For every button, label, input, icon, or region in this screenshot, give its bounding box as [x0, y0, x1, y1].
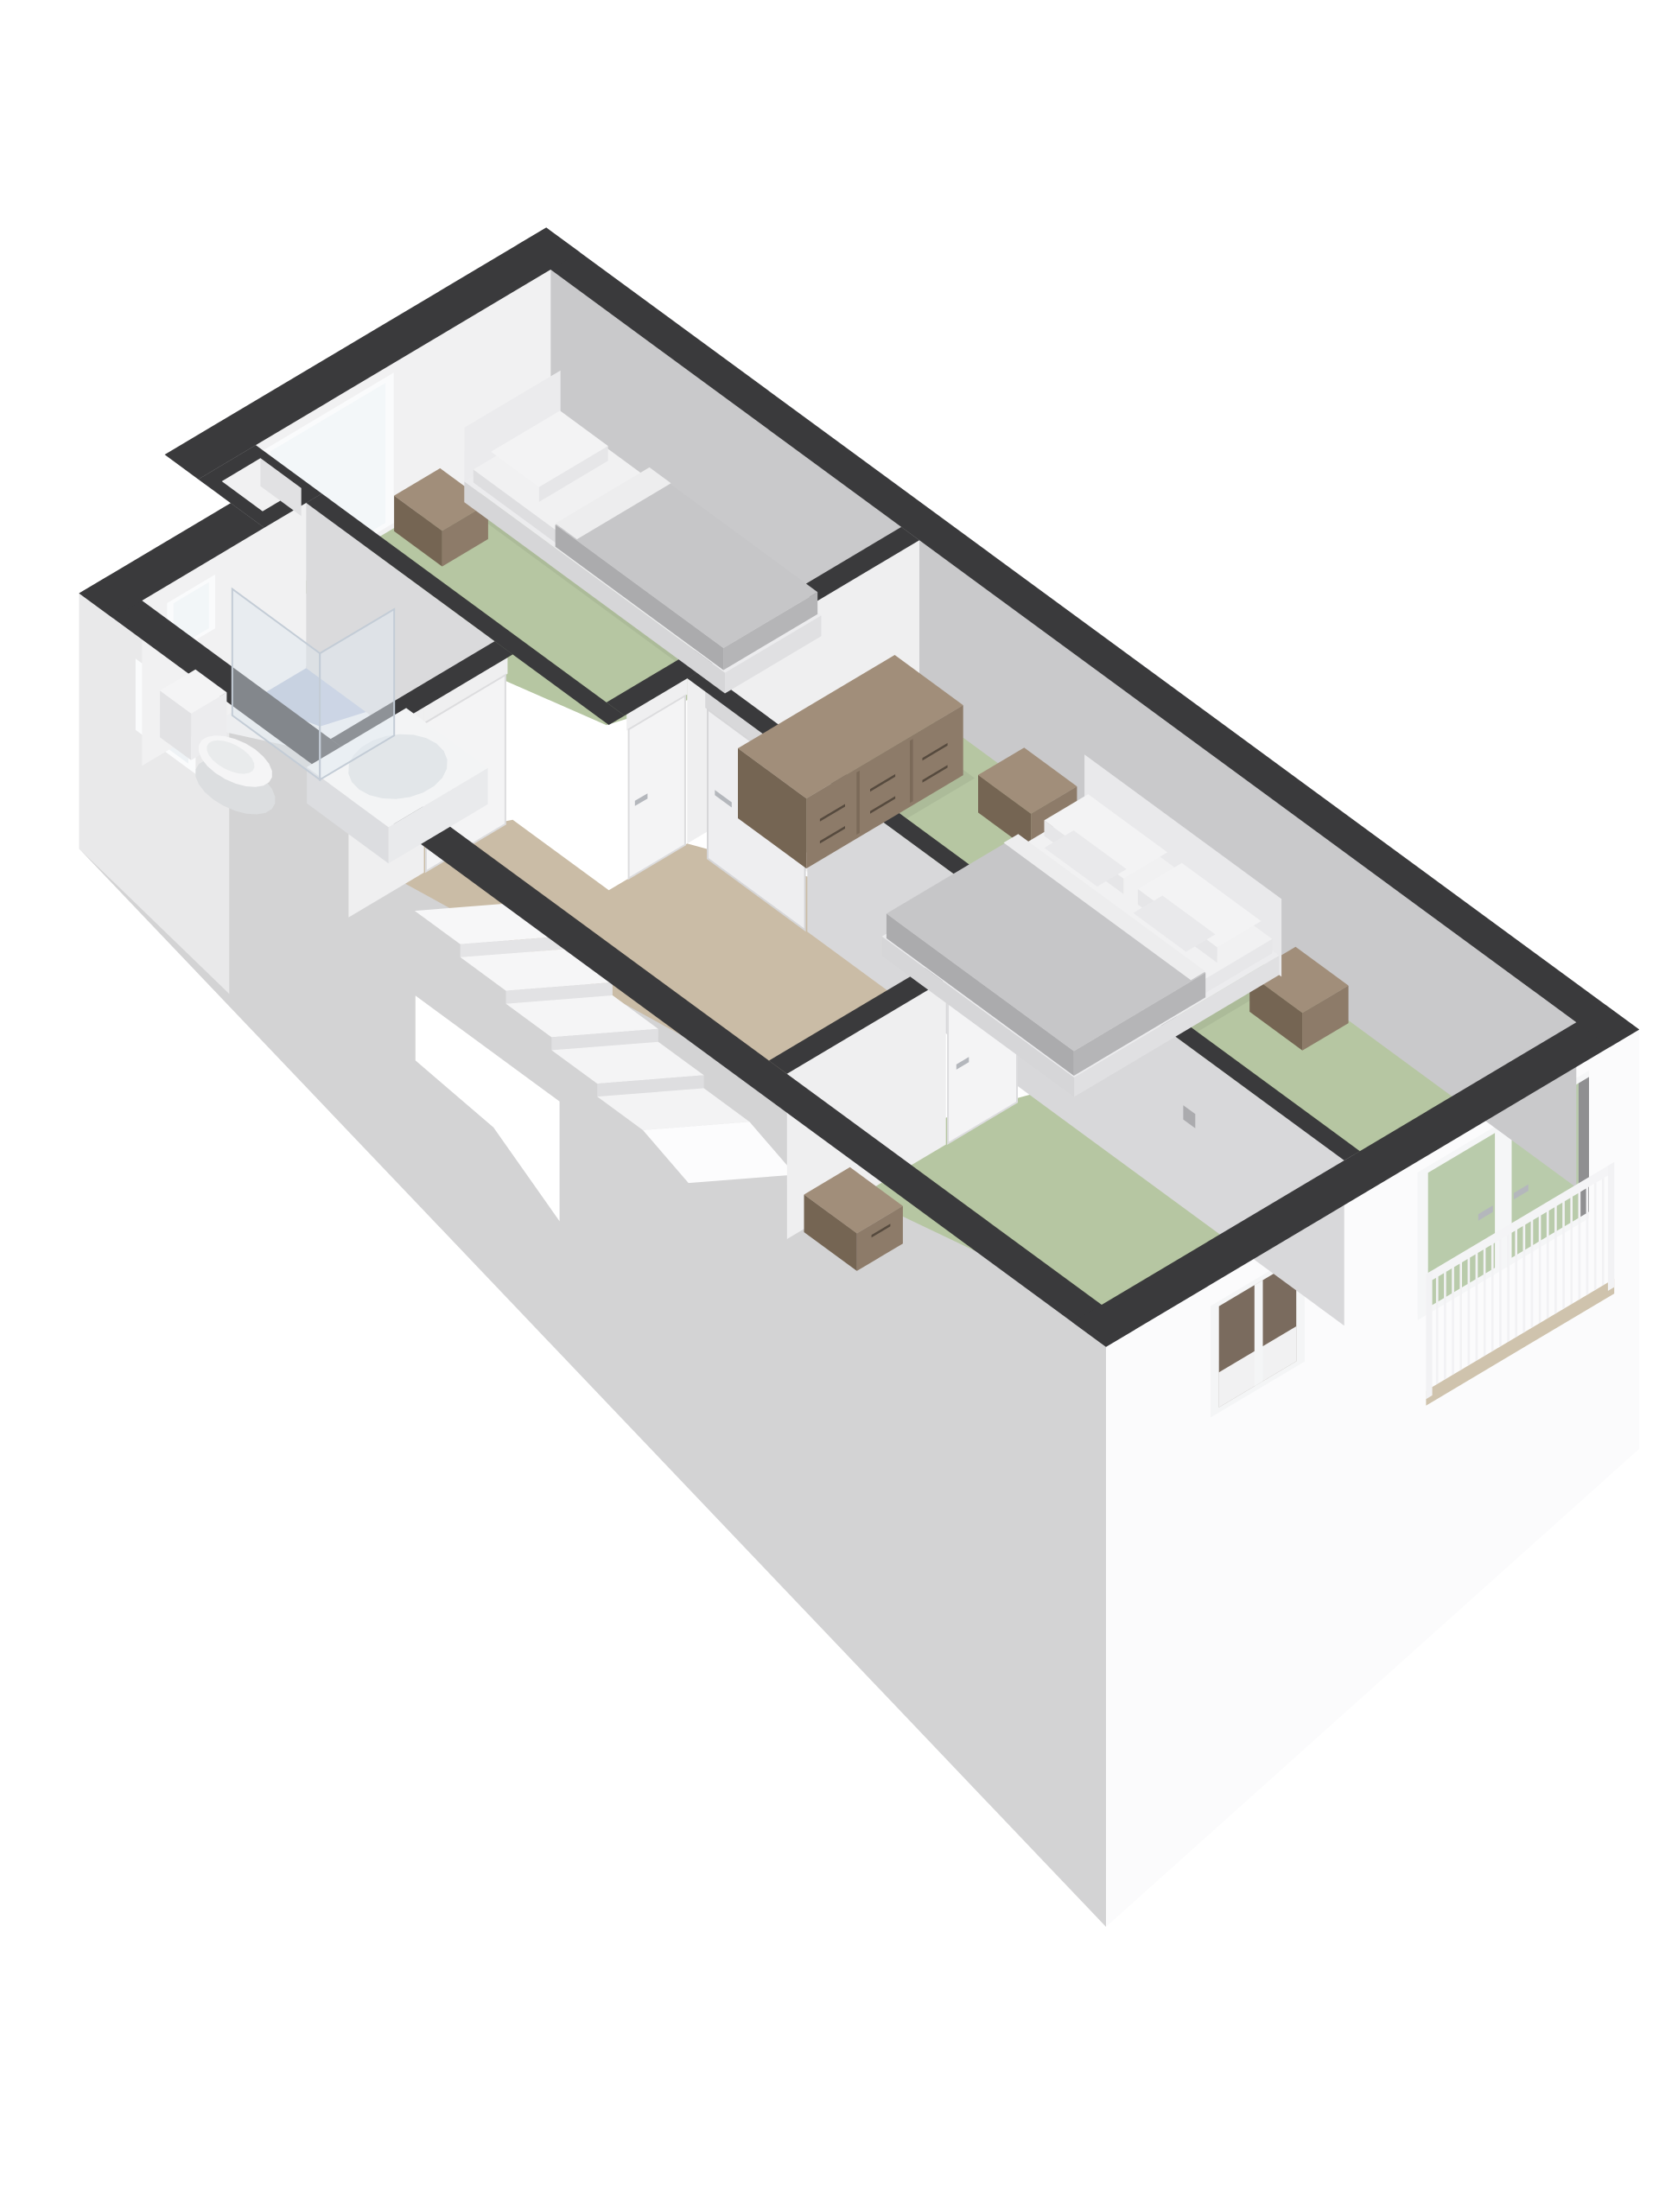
bedroom3-window-mullion: [1255, 1281, 1263, 1387]
balcony-railing-baluster: [1444, 1270, 1446, 1380]
balcony-railing-baluster: [1507, 1233, 1510, 1343]
balcony-railing-baluster: [1570, 1195, 1573, 1305]
balcony-railing-baluster: [1547, 1210, 1549, 1319]
dresser-divider-1: [856, 771, 860, 835]
balcony-railing-baluster: [1531, 1219, 1534, 1329]
floorplan-3d-view: [0, 0, 1659, 2212]
balcony-railing-baluster: [1476, 1252, 1478, 1362]
balcony-railing-baluster: [1459, 1261, 1462, 1370]
floorplan-3d-canvas: [0, 0, 1659, 2212]
balcony-railing-baluster: [1484, 1247, 1486, 1357]
balcony-railing-baluster: [1554, 1205, 1557, 1314]
balcony-railing-baluster: [1436, 1275, 1439, 1385]
balcony-railing-post-left: [1426, 1270, 1432, 1399]
balcony-railing-baluster: [1594, 1181, 1597, 1291]
dresser-divider-2: [910, 739, 913, 803]
balcony-railing-baluster: [1579, 1191, 1581, 1300]
balcony-railing-baluster: [1602, 1177, 1605, 1287]
balcony-railing-baluster: [1562, 1200, 1565, 1310]
balcony-railing-baluster: [1468, 1256, 1471, 1366]
balcony-railing-baluster: [1586, 1185, 1589, 1295]
balcony-railing-baluster: [1523, 1224, 1526, 1333]
balcony-railing-baluster: [1539, 1214, 1541, 1324]
balcony-railing-baluster: [1499, 1237, 1502, 1347]
balcony-railing-baluster: [1515, 1228, 1517, 1338]
balcony-railing-baluster: [1491, 1243, 1494, 1352]
balcony-railing-post-right: [1608, 1162, 1614, 1291]
balcony-railing-baluster: [1452, 1266, 1454, 1376]
